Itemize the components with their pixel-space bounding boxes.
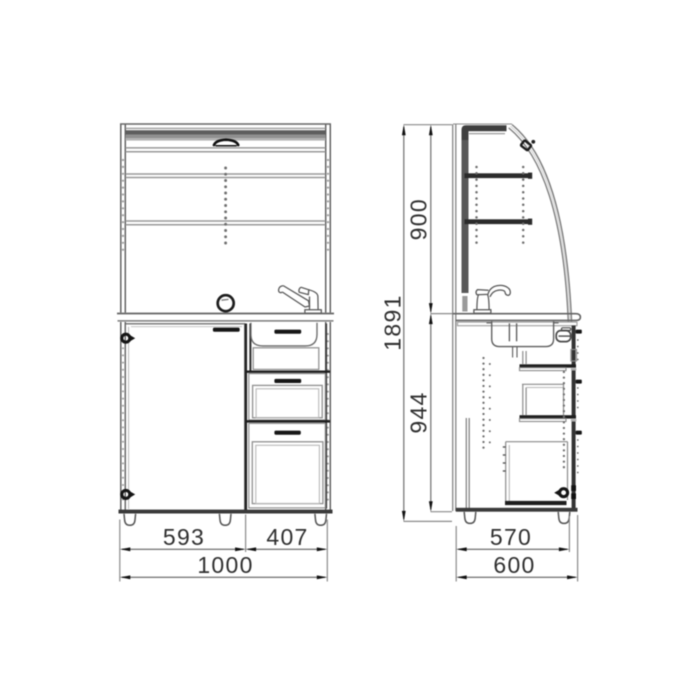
- svg-text:1891: 1891: [379, 294, 405, 350]
- svg-text:570: 570: [490, 524, 532, 550]
- svg-text:944: 944: [406, 391, 432, 433]
- svg-text:600: 600: [493, 552, 535, 578]
- svg-text:407: 407: [266, 524, 308, 550]
- svg-text:593: 593: [163, 524, 205, 550]
- svg-text:1000: 1000: [197, 552, 253, 578]
- svg-text:900: 900: [406, 198, 432, 240]
